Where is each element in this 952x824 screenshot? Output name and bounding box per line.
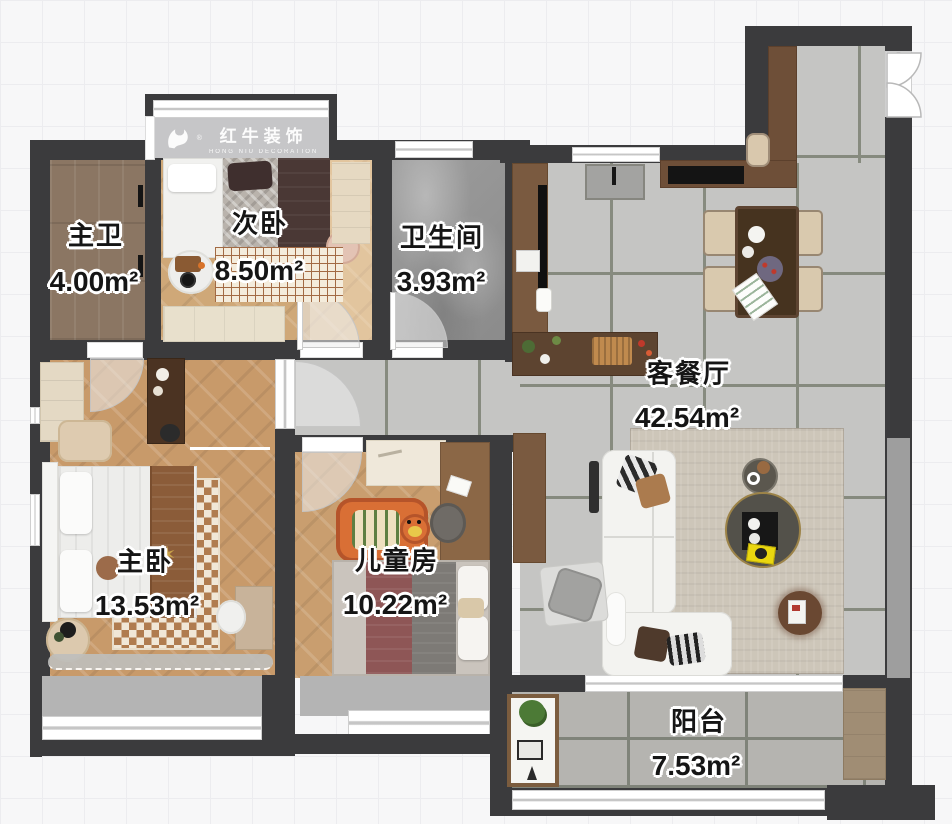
bedroom2-shelf (332, 162, 370, 244)
towel-bar-icon (138, 255, 143, 277)
floor-plan: ® 红牛装饰 HONG NIU DECORATION (0, 0, 952, 824)
master-bay-window (42, 716, 262, 740)
kids-bay-window (348, 710, 490, 736)
cup-icon (748, 518, 760, 530)
kids-desk-chair (430, 503, 466, 543)
kids-bay-frame-bottom (295, 734, 490, 754)
tiger-muzzle (408, 526, 422, 537)
sideboard-plant-icon (522, 340, 535, 353)
master-bay-panel (42, 676, 262, 718)
plate-icon (748, 226, 765, 243)
entry-door-leaf-bottom (887, 83, 921, 117)
potted-plant-icon (519, 700, 545, 724)
wall-kids-right (490, 435, 512, 692)
balcony-top-wall-left (512, 675, 585, 692)
wall-masterbath-bedroom2 (145, 160, 161, 342)
master-bed-headboard (42, 462, 58, 622)
kids-wardrobe (366, 440, 446, 486)
bar-stool (746, 133, 770, 167)
label-kids-room-name: 儿童房 (355, 541, 439, 578)
plate-icon (742, 246, 754, 258)
bolster-pillow (606, 592, 626, 646)
master-bay-frame-bottom (30, 740, 282, 756)
wall-master-kids (275, 428, 295, 692)
kids-pillow-tan (458, 598, 484, 618)
bathroom-door-leaf (390, 292, 396, 350)
entry-double-door (885, 50, 937, 120)
floor-lamp (589, 461, 599, 513)
small-stool-white (536, 288, 552, 312)
wall-corner-bottom-right (827, 785, 935, 820)
bedroom2-bay-window (153, 100, 329, 118)
sink-faucet-icon (612, 167, 616, 185)
vanity-stool (160, 424, 180, 442)
label-bathroom-name: 卫生间 (400, 218, 484, 255)
desk-chair (216, 600, 246, 634)
appliance-white (516, 250, 540, 272)
sofa-seam (604, 536, 674, 538)
record-player-icon (180, 272, 196, 288)
white-bowl-icon (540, 354, 550, 364)
woven-basket (592, 337, 632, 365)
bed2-pillow (168, 164, 216, 192)
label-balcony-name: 阳台 (671, 702, 727, 739)
brand-watermark: ® 红牛装饰 HONG NIU DECORATION (153, 118, 329, 158)
label-bedroom2-area: 8.50m² (215, 255, 304, 287)
book-on-rug (788, 600, 806, 624)
side-table-bowl (757, 461, 770, 474)
bed2-pillow-dark (227, 160, 273, 191)
master-bath-door-threshold (87, 342, 143, 358)
kids-pillow (458, 616, 488, 660)
kitchen-window (572, 147, 660, 162)
master-bedroom-door-threshold (275, 359, 295, 429)
bay-pillar-center (262, 675, 295, 756)
washing-machine-icon (517, 740, 543, 760)
pillow-striped (666, 632, 706, 667)
brand-subtitle: HONG NIU DECORATION (209, 149, 318, 155)
label-bathroom-area: 3.93m² (397, 266, 486, 298)
nightstand-top (58, 420, 112, 462)
balcony-sliding-door (585, 675, 843, 692)
label-living-dining-name: 客餐厅 (647, 354, 731, 391)
wall-bedroom2-bathroom (372, 140, 392, 360)
bedroom2-cabinet (163, 306, 285, 342)
label-master-bath-name: 主卫 (68, 216, 124, 253)
bedroom2-bay-pillar (145, 116, 155, 160)
tv-dining (538, 185, 547, 291)
plant-leaves-icon (54, 632, 64, 642)
label-master-bath-area: 4.00m² (50, 266, 139, 298)
bathroom-window (395, 141, 473, 158)
master-pillow (60, 472, 92, 534)
cup-icon (749, 533, 760, 544)
sideboard-plant2-icon (552, 336, 561, 345)
fruit-platter (757, 256, 783, 282)
towel-bar-icon (138, 185, 143, 207)
tiger-eye (407, 520, 411, 524)
orange-dot-icon (198, 262, 205, 269)
label-master-bedroom-name: 主卧 (117, 542, 173, 579)
master-pillow (60, 550, 92, 612)
sideboard (512, 332, 658, 376)
label-bedroom2-name: 次卧 (232, 204, 288, 241)
pillow-dark (633, 625, 670, 662)
bedroom2-bay-frame-right (329, 94, 337, 160)
label-kids-room-area: 10.22m² (343, 589, 447, 621)
curtain-master (48, 654, 273, 670)
master-left-window (30, 494, 40, 546)
bull-logo-icon (164, 125, 190, 151)
kids-door-threshold (302, 437, 363, 452)
brand-name: 红牛装饰 (220, 122, 308, 147)
tiger-eye (417, 520, 421, 524)
floor-plan-canvas: ® 红牛装饰 HONG NIU DECORATION (0, 0, 952, 824)
living-right-window (887, 438, 910, 678)
yellow-book-print (755, 548, 767, 559)
registered-mark: ® (197, 135, 202, 142)
label-master-bedroom-area: 13.53m² (95, 590, 199, 622)
cosmetics-icon (153, 386, 163, 396)
label-living-dining-area: 42.54m² (635, 402, 739, 434)
label-balcony-area: 7.53m² (652, 750, 741, 782)
side-table-ring (747, 472, 760, 485)
cooktop (668, 166, 744, 184)
floor-marker-line (190, 447, 270, 450)
red-flower-icon (638, 340, 645, 347)
cosmetics-icon (156, 368, 169, 381)
master-left-vent (30, 407, 40, 424)
balcony-cabinet (843, 688, 886, 780)
book-print (792, 605, 800, 611)
tv-cabinet (513, 433, 546, 563)
balcony-bottom-window (512, 790, 825, 810)
entry-door-leaf-top (887, 53, 921, 87)
